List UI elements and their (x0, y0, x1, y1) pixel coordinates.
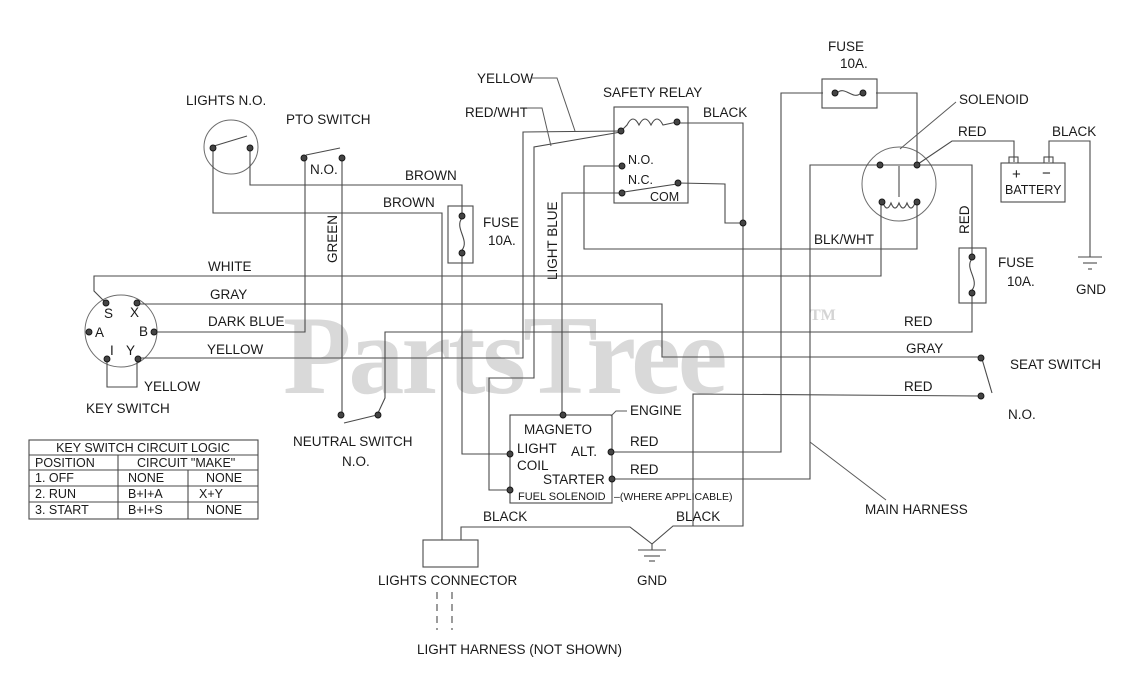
terminal-dot (978, 393, 984, 399)
safety-relay-label: SAFETY RELAY (603, 85, 702, 100)
logic-table-col-circuit: CIRCUIT "MAKE" (137, 456, 235, 470)
seat-switch-arm (982, 359, 992, 393)
table-row-circuit: NONE (128, 471, 164, 485)
ground-symbol-bottom (638, 544, 666, 561)
terminal-dot (459, 213, 465, 219)
fuse-brown-label: FUSE (483, 215, 519, 230)
terminal-dot (151, 329, 157, 335)
light-label: LIGHT (517, 441, 557, 456)
terminal-dot (860, 90, 866, 96)
engine-label: ENGINE (630, 403, 682, 418)
ground-symbol-right (1078, 257, 1102, 269)
fuse-top-amps: 10A. (840, 56, 868, 71)
yellow-leader (532, 78, 575, 131)
terminal-dot (86, 329, 92, 335)
wire-yellow-jumper (107, 360, 137, 387)
watermark-tm: TM (810, 307, 836, 324)
terminal-dot (247, 145, 253, 151)
coil-label: COIL (517, 458, 549, 473)
red-starter-wire-label: RED (630, 462, 659, 477)
solenoid-leader (900, 102, 956, 149)
solenoid-coil (883, 203, 915, 208)
terminal-dot (914, 199, 920, 205)
table-row-make: X+Y (199, 487, 224, 501)
key-switch-label: KEY SWITCH (86, 401, 170, 416)
gnd-bottom-label: GND (637, 573, 667, 588)
wire-black-connector-to-gnd (461, 527, 652, 544)
lights-connector-label: LIGHTS CONNECTOR (378, 573, 518, 588)
black-battery-label: BLACK (1052, 124, 1096, 139)
table-row-position: 3. START (35, 503, 89, 517)
terminal-dot (608, 449, 614, 455)
brown-lower-label: BROWN (383, 195, 435, 210)
terminal-dot (339, 155, 345, 161)
lights-switch-label: LIGHTS N.O. (186, 93, 266, 108)
table-row-position: 1. OFF (35, 471, 74, 485)
terminal-dot (619, 163, 625, 169)
table-row-position: 2. RUN (35, 487, 76, 501)
terminal-dot (675, 180, 681, 186)
fuel-solenoid-label: FUEL SOLENOID (518, 491, 606, 503)
terminal-dot (618, 128, 624, 134)
terminal-dot (338, 412, 344, 418)
key-terminal-b: B (139, 324, 148, 339)
terminal-dot (969, 290, 975, 296)
logic-table-col-position: POSITION (35, 456, 95, 470)
pto-no-label: N.O. (310, 162, 338, 177)
solenoid-label: SOLENOID (959, 92, 1029, 107)
wire-fuse-to-solenoid-top (876, 93, 917, 164)
watermark-text: PartsTree (283, 294, 725, 418)
brown-upper-label: BROWN (405, 168, 457, 183)
pto-switch-arm (306, 148, 340, 155)
neutral-switch-label: NEUTRAL SWITCH (293, 434, 413, 449)
fuse-right-label: FUSE (998, 255, 1034, 270)
red-vertical-label: RED (957, 205, 972, 234)
key-switch-logic-table: KEY SWITCH CIRCUIT LOGIC POSITION CIRCUI… (29, 440, 258, 519)
terminal-dot (914, 162, 920, 168)
key-terminal-i: I (110, 343, 114, 358)
table-row-circuit: B+I+S (128, 503, 163, 517)
light-blue-wire-label: LIGHT BLUE (545, 201, 560, 280)
red-seat-wire-label: RED (904, 379, 933, 394)
black-left-wire-label: BLACK (483, 509, 527, 524)
red-neutral-wire-label: RED (904, 314, 933, 329)
key-terminal-a: A (95, 325, 104, 340)
alt-label: ALT. (571, 444, 597, 459)
light-harness-label: LIGHT HARNESS (NOT SHOWN) (417, 642, 622, 657)
table-row-make: NONE (206, 471, 242, 485)
light-harness-stubs (437, 592, 452, 630)
red-wht-leader (528, 108, 551, 146)
terminal-dot (609, 476, 615, 482)
terminal-dot (375, 412, 381, 418)
terminal-dot (507, 487, 513, 493)
pto-switch-label: PTO SWITCH (286, 112, 371, 127)
terminal-dot (210, 145, 216, 151)
battery-minus: − (1042, 165, 1051, 182)
black-right-wire-label: BLACK (676, 509, 720, 524)
magneto-label: MAGNETO (524, 422, 592, 437)
terminal-dot (301, 155, 307, 161)
wiring-diagram: PartsTree TM (0, 0, 1133, 700)
relay-com-label: COM (650, 190, 679, 204)
yellow-wire-label: YELLOW (477, 71, 534, 86)
coil-symbols (460, 91, 975, 290)
table-row-circuit: B+I+A (128, 487, 163, 501)
fuse-top-label: FUSE (828, 39, 864, 54)
terminal-dot (459, 250, 465, 256)
key-terminal-y: Y (126, 343, 135, 358)
terminal-dot (674, 119, 680, 125)
key-terminal-s: S (104, 306, 113, 321)
battery-label: BATTERY (1005, 183, 1062, 197)
white-wire-label: WHITE (208, 259, 252, 274)
terminal-dot (879, 199, 885, 205)
seat-no-label: N.O. (1008, 407, 1036, 422)
relay-no-label: N.O. (628, 153, 654, 167)
schematic-canvas: PartsTree TM (0, 0, 1133, 700)
key-switch-terminal-letters: S X A B I Y (95, 305, 148, 358)
wire-red-battery (918, 141, 1014, 164)
dark-blue-wire-label: DARK BLUE (208, 314, 285, 329)
key-terminal-x: X (130, 305, 139, 320)
terminal-dot (619, 190, 625, 196)
gray-seat-wire-label: GRAY (906, 341, 943, 356)
main-harness-leader (810, 442, 886, 500)
starter-label: STARTER (543, 472, 605, 487)
red-alt-wire-label: RED (630, 434, 659, 449)
terminal-dot (560, 412, 566, 418)
where-applicable-label: –(WHERE APPLICABLE) (614, 491, 732, 503)
relay-nc-label: N.C. (628, 173, 653, 187)
terminal-dot (969, 254, 975, 260)
fuse-right-amps: 10A. (1007, 274, 1035, 289)
blk-wht-wire-label: BLK/WHT (814, 232, 874, 247)
gray-wire-label: GRAY (210, 287, 247, 302)
fuse-brown-amps: 10A. (488, 233, 516, 248)
yellow-jumper-label: YELLOW (144, 379, 201, 394)
lights-switch-arm (214, 136, 247, 146)
seat-switch-label: SEAT SWITCH (1010, 357, 1101, 372)
terminal-dot (135, 356, 141, 362)
terminal-dot (877, 162, 883, 168)
gnd-right-label: GND (1076, 282, 1106, 297)
red-battery-label: RED (958, 124, 987, 139)
terminal-dot (978, 355, 984, 361)
neutral-no-label: N.O. (342, 454, 370, 469)
yellow-key-wire-label: YELLOW (207, 342, 264, 357)
logic-table-title: KEY SWITCH CIRCUIT LOGIC (56, 441, 230, 455)
green-wire-label: GREEN (325, 215, 340, 263)
terminal-dot (507, 451, 513, 457)
red-wht-wire-label: RED/WHT (465, 105, 528, 120)
junction-dot (740, 220, 746, 226)
battery-plus: + (1012, 166, 1021, 183)
table-row-make: NONE (206, 503, 242, 517)
lights-connector-box (423, 540, 478, 567)
black-relay-label: BLACK (703, 105, 747, 120)
main-harness-label: MAIN HARNESS (865, 502, 968, 517)
terminal-dot (832, 90, 838, 96)
